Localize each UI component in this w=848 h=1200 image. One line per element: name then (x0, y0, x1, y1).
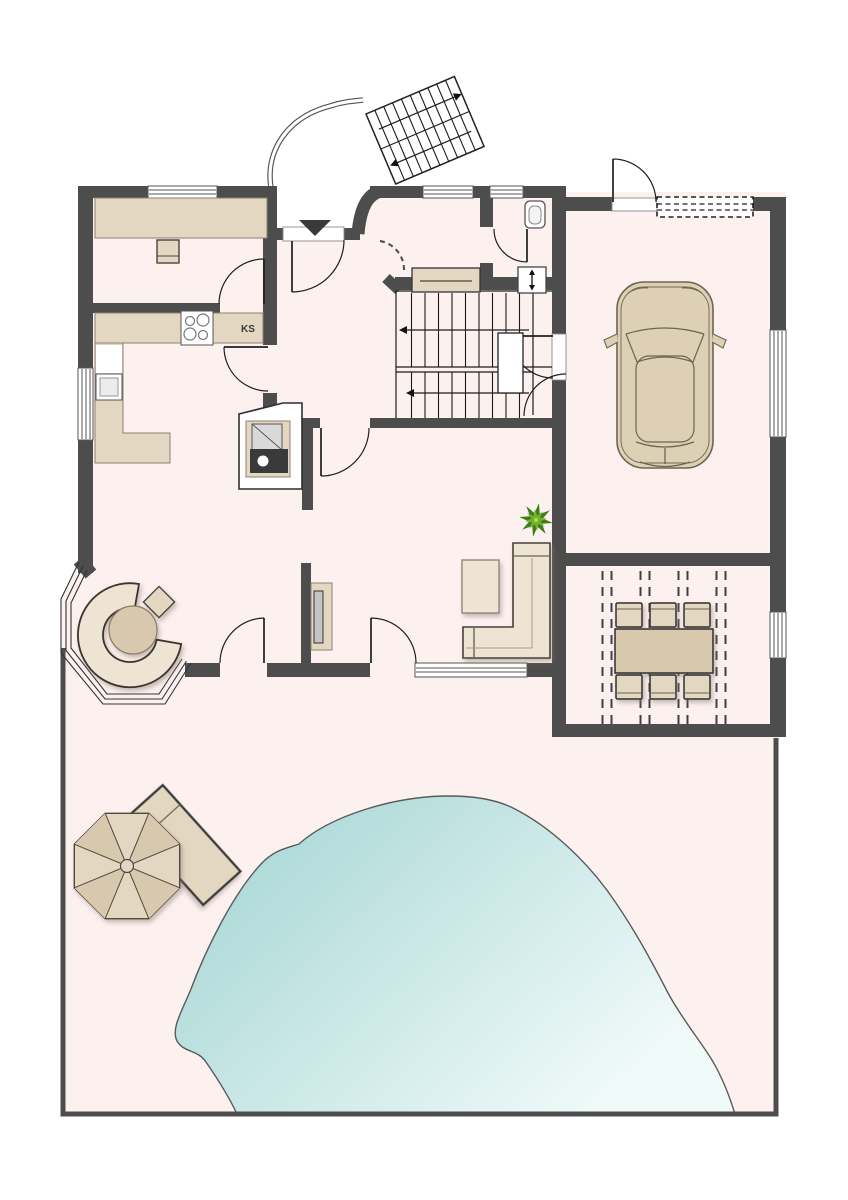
stool (157, 240, 179, 263)
hob-icon (181, 311, 213, 345)
kitchen-counter-top (95, 313, 263, 343)
garage-sectional-door-dashed (657, 197, 753, 217)
parasol-pole (121, 860, 134, 873)
garage-side-door (612, 159, 657, 211)
dining-chair (650, 675, 676, 699)
dining-chair (684, 675, 710, 699)
stair-closet (498, 333, 523, 393)
floor-plan-drawing: KS (0, 0, 848, 1200)
fridge-label: KS (241, 324, 255, 335)
bay-wall-stub (79, 560, 91, 574)
dining-set (615, 603, 713, 699)
dining-chair (650, 603, 676, 627)
dining-chair (684, 603, 710, 627)
dining-chair (616, 675, 642, 699)
sink-icon (96, 374, 122, 400)
window (423, 186, 473, 198)
tv-unit (311, 583, 332, 650)
parasol-umbrella (74, 813, 179, 918)
stove-unit (250, 449, 288, 473)
window (770, 612, 786, 658)
valve-symbol-icon (518, 267, 546, 293)
exterior-stair-flights (366, 76, 484, 183)
window (148, 186, 217, 198)
floor-plan-page: KS (0, 0, 848, 1200)
coffee-table (462, 560, 499, 613)
window (770, 330, 786, 437)
dishwasher (96, 345, 122, 373)
dining-table (615, 629, 713, 673)
stove-door (258, 456, 269, 467)
car-body (617, 282, 713, 468)
fireplace (239, 403, 302, 489)
exterior-staircase (270, 76, 484, 188)
tv-screen (314, 591, 323, 643)
toilet-icon (525, 201, 545, 228)
dining-chair (616, 603, 642, 627)
wardrobe (95, 198, 267, 238)
window (78, 368, 93, 440)
railing-outer (270, 100, 363, 188)
car-top-view (604, 282, 726, 468)
window (490, 186, 523, 198)
sideboard (412, 268, 480, 292)
terrace-window (415, 663, 527, 677)
round-table (109, 606, 157, 654)
